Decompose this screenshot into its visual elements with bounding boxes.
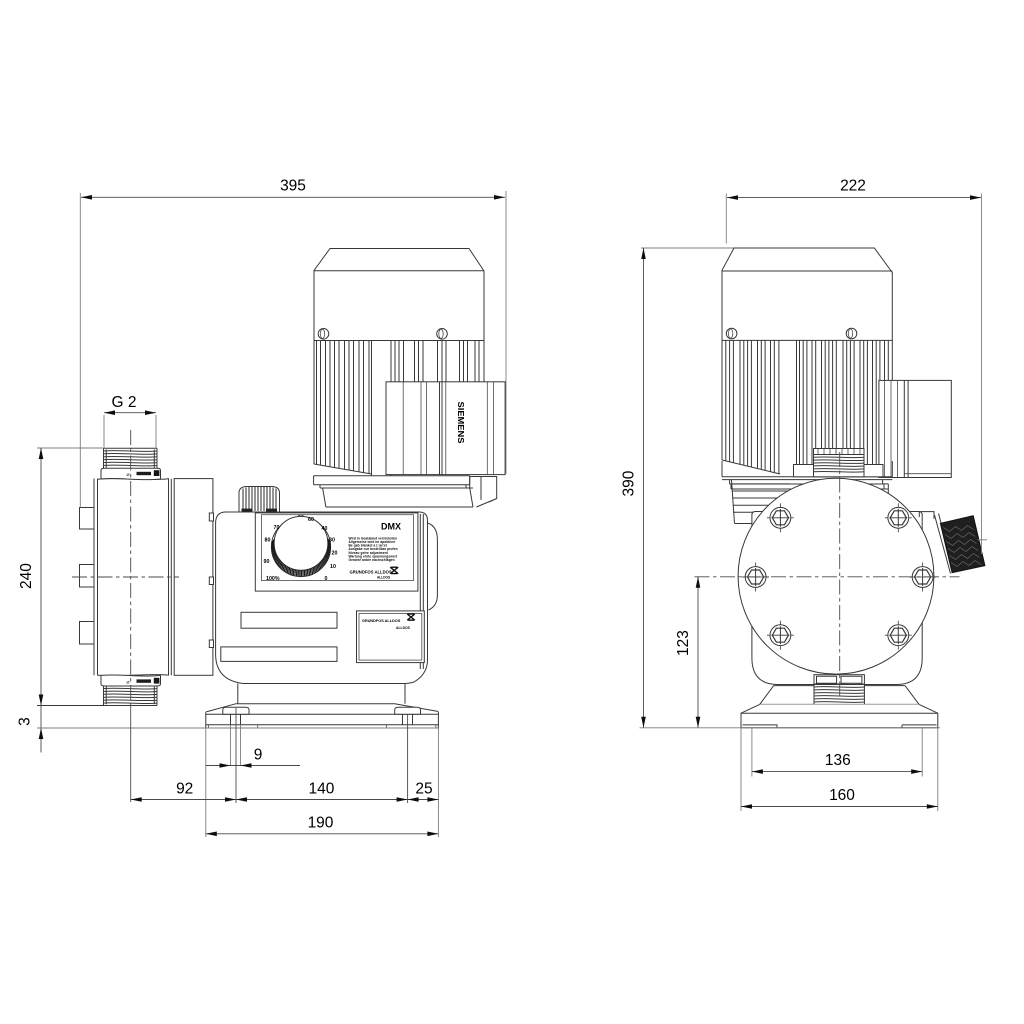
svg-text:160: 160	[829, 787, 855, 804]
svg-text:390: 390	[621, 470, 638, 496]
svg-text:ALLDOS: ALLDOS	[396, 626, 411, 630]
svg-text:240: 240	[18, 563, 35, 589]
svg-text:10: 10	[330, 564, 336, 570]
svg-text:140: 140	[308, 781, 334, 798]
svg-text:395: 395	[280, 178, 306, 195]
svg-text:190: 190	[308, 815, 334, 832]
svg-text:30: 30	[329, 538, 335, 544]
svg-text:⌀: ⌀	[127, 680, 130, 686]
svg-text:ALLDOS: ALLDOS	[377, 576, 390, 580]
svg-text:GRUNDFOS ALLDOS: GRUNDFOS ALLDOS	[362, 619, 401, 623]
svg-text:70: 70	[274, 525, 280, 531]
svg-text:3: 3	[17, 717, 34, 726]
svg-text:DMX: DMX	[381, 522, 401, 532]
svg-text:40: 40	[322, 526, 328, 532]
svg-text:GRUNDFOS ALLDOS: GRUNDFOS ALLDOS	[350, 570, 392, 575]
svg-text:⌀: ⌀	[127, 472, 130, 478]
svg-text:G 2: G 2	[112, 394, 137, 411]
svg-text:25: 25	[415, 781, 432, 798]
svg-text:0: 0	[325, 576, 328, 582]
svg-text:Geraete anbre nachschlagen: Geraete anbre nachschlagen	[349, 558, 395, 562]
svg-text:123: 123	[675, 630, 692, 656]
svg-text:SIEMENS: SIEMENS	[456, 402, 465, 445]
svg-text:60: 60	[308, 517, 314, 523]
svg-text:80: 80	[265, 538, 271, 544]
svg-text:100%: 100%	[266, 576, 280, 582]
svg-text:92: 92	[176, 781, 193, 798]
svg-text:136: 136	[825, 752, 851, 769]
svg-text:9: 9	[254, 747, 263, 764]
svg-text:20: 20	[332, 551, 338, 557]
svg-text:90: 90	[264, 559, 270, 565]
svg-text:222: 222	[840, 178, 866, 195]
